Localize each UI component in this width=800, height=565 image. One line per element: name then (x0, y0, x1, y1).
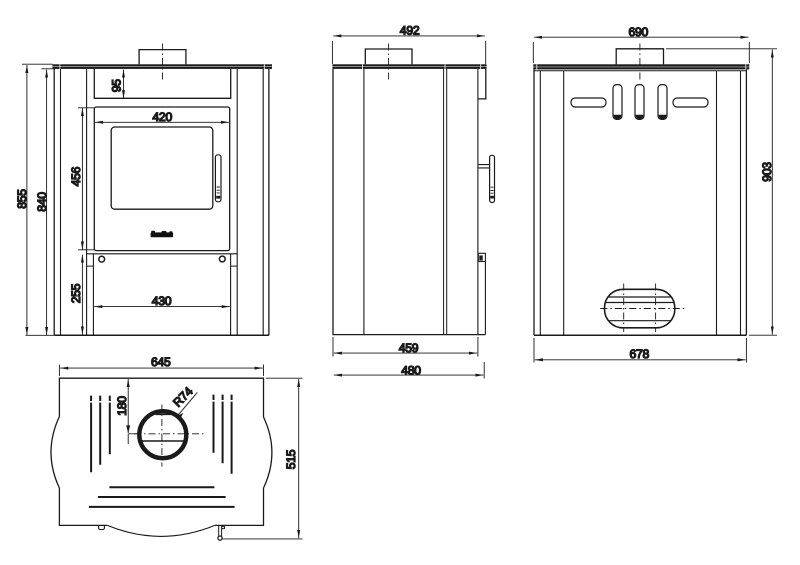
svg-text:678: 678 (630, 347, 650, 361)
svg-text:180: 180 (115, 396, 129, 416)
svg-text:R74: R74 (170, 384, 196, 410)
svg-text:255: 255 (69, 283, 83, 303)
svg-text:690: 690 (629, 25, 649, 39)
svg-text:456: 456 (69, 166, 83, 186)
svg-text:459: 459 (399, 341, 419, 355)
svg-text:95: 95 (110, 79, 124, 93)
svg-text:903: 903 (760, 162, 774, 182)
svg-text:430: 430 (152, 294, 172, 308)
svg-text:645: 645 (151, 355, 171, 369)
svg-text:855: 855 (15, 189, 29, 209)
svg-text:515: 515 (284, 449, 298, 469)
svg-text:492: 492 (400, 24, 420, 38)
svg-text:840: 840 (35, 192, 49, 212)
svg-text:480: 480 (401, 363, 421, 377)
svg-text:420: 420 (152, 110, 172, 124)
